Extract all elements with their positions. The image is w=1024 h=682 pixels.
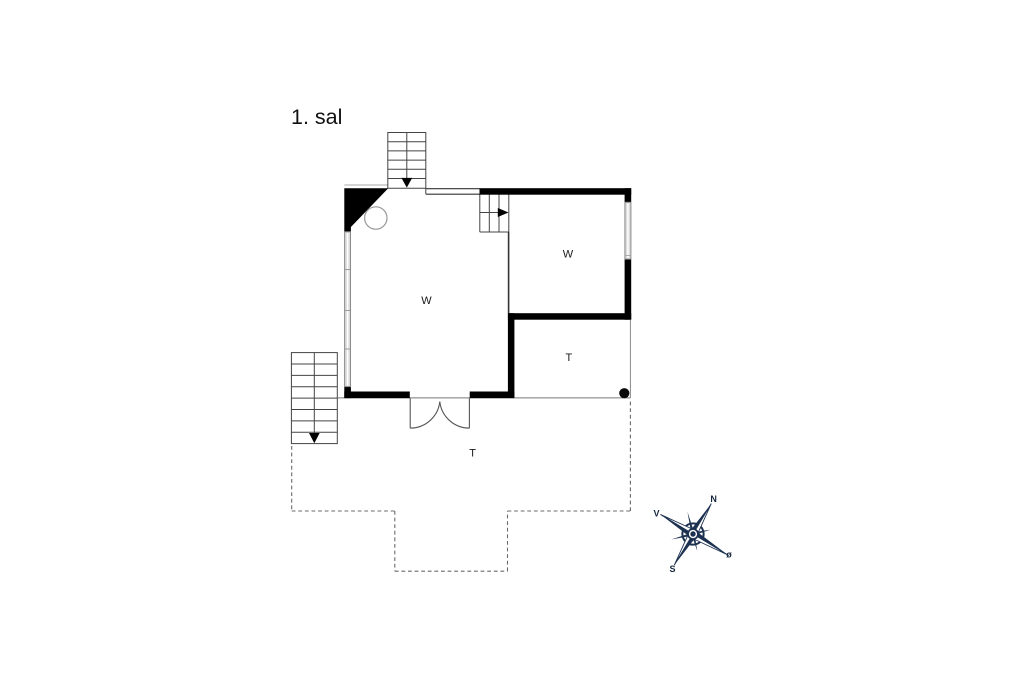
svg-text:W: W	[421, 295, 432, 307]
svg-text:ø: ø	[726, 550, 732, 560]
svg-text:N: N	[710, 494, 717, 504]
svg-text:T: T	[469, 448, 476, 460]
svg-text:W: W	[563, 248, 574, 260]
svg-text:1. sal: 1. sal	[291, 105, 342, 129]
svg-text:S: S	[669, 564, 675, 574]
svg-text:T: T	[566, 352, 573, 364]
svg-text:V: V	[653, 509, 659, 519]
